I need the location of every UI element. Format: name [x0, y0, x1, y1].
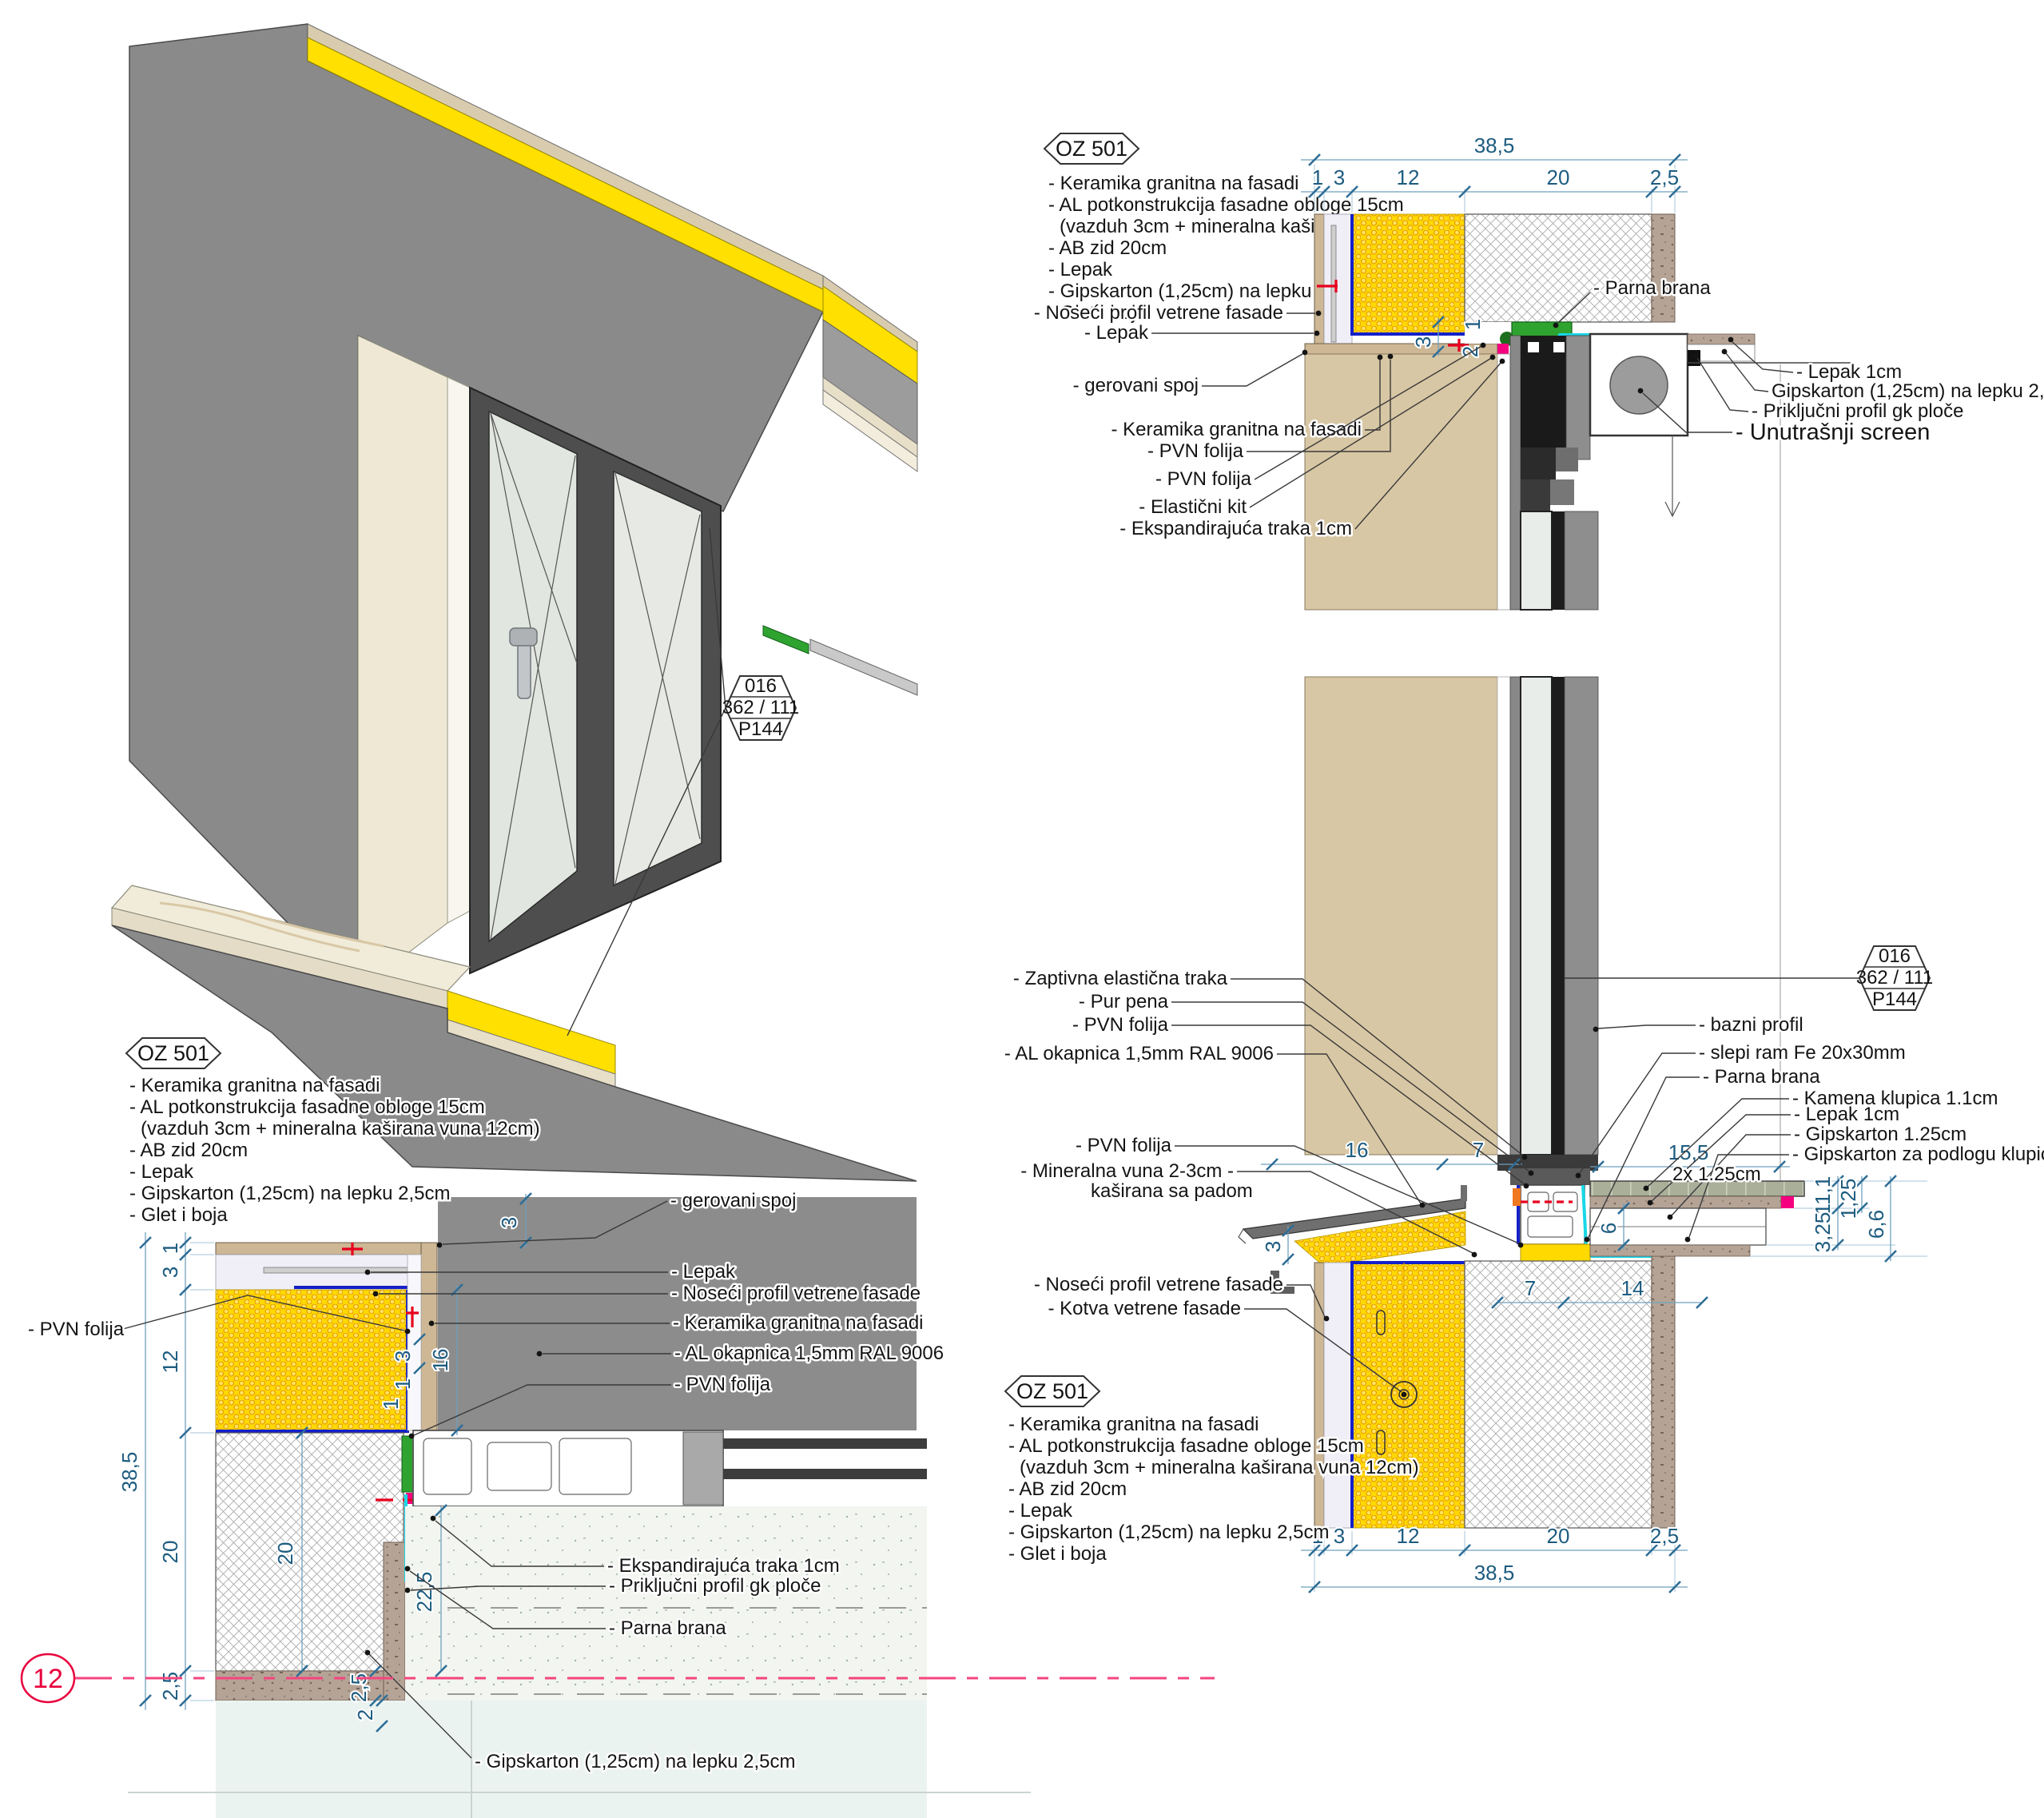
- glass-line: [723, 1469, 927, 1479]
- insulation-layer: [216, 1290, 408, 1433]
- stamp-sill: 016 362 / 111 P144: [1565, 945, 1933, 1010]
- sash-profile: [1565, 677, 1598, 1155]
- label-pvn: - PVN folija: [1076, 1135, 1172, 1156]
- dim-seg: 3: [158, 1267, 182, 1278]
- legend-item: - Keramika granitna na fasadi: [129, 1075, 380, 1096]
- subsill-profile: [1521, 1185, 1585, 1244]
- dim: 22,5: [412, 1572, 436, 1613]
- screen-roller: [1610, 356, 1668, 414]
- dim-total: 38,5: [1474, 1561, 1515, 1585]
- label-gipspod: - Gipskarton za podlogu klupice: [1792, 1144, 2044, 1165]
- legend-item: - Lepak: [1048, 259, 1113, 280]
- gap-return: [408, 1255, 421, 1430]
- label-mineralna2: kaširana sa padom: [1091, 1180, 1253, 1202]
- air-gap-layer: [1324, 214, 1352, 344]
- dim-total: 38,5: [117, 1452, 141, 1493]
- endcap-profile: [810, 639, 917, 695]
- label-prikljucni: - Priključni profil gk ploče: [609, 1575, 821, 1597]
- dim: 6: [1597, 1223, 1620, 1234]
- ab-zid-layer: [216, 1433, 404, 1671]
- label-noseci: - Noseći profil vetrene fasade: [671, 1283, 921, 1304]
- stamp-line3: P144: [1872, 989, 1917, 1010]
- dim-seg: 3: [1334, 1524, 1345, 1548]
- label-noseci: - Noseći profil vetrene fasade: [1034, 302, 1283, 324]
- label-keramika: - Keramika granitna na fasadi: [673, 1312, 924, 1334]
- reveal-face: [1305, 677, 1497, 1155]
- legend-item: - Gipskarton (1,25cm) na lepku 2,5cm: [1008, 1522, 1330, 1543]
- glass: [1521, 677, 1552, 1155]
- label-mineralna: - Mineralna vuna 2-3cm -: [1020, 1160, 1234, 1182]
- dim-seg: 1: [1312, 165, 1323, 189]
- sash-step: [1521, 448, 1556, 479]
- screen-arrow: [1665, 436, 1680, 516]
- ceramic-layer: [216, 1243, 435, 1255]
- ceramic-layer: [1314, 214, 1324, 344]
- dim: 3: [497, 1217, 521, 1228]
- interior-face: [405, 1506, 927, 1701]
- dim-small: 1: [1461, 319, 1485, 330]
- label-noseci: - Noseći profil vetrene fasade: [1034, 1274, 1283, 1295]
- dim: 16: [1346, 1138, 1369, 1162]
- joint-tape: [1781, 1196, 1794, 1208]
- label-parna: - Parna brana: [1593, 277, 1711, 299]
- dim-seg: 12: [158, 1351, 182, 1374]
- label-gips: Gipskarton (1,25cm) na lepku 2,5cm: [1772, 380, 2044, 402]
- drawing-canvas: 016 362 / 111 P144 OZ 501 - Keramika gra…: [0, 0, 2044, 1818]
- label-prikljucni: - Priključni profil gk ploče: [1752, 400, 1963, 422]
- legend-item: - Gipskarton (1,25cm) na lepku 2,5cm: [129, 1183, 451, 1204]
- label-pvn: - PVN folija: [1072, 1014, 1169, 1036]
- gips-return: [384, 1542, 405, 1701]
- label-okapnica: - AL okapnica 1,5mm RAL 9006: [1004, 1043, 1274, 1064]
- legend-code: OZ 501: [1056, 137, 1127, 161]
- label-lepak: - Lepak: [671, 1261, 736, 1283]
- dim: 11,1: [1811, 1176, 1835, 1215]
- ab-zid-layer: [1465, 214, 1652, 322]
- lepak-3d: [763, 626, 809, 654]
- frame-gap: [1497, 677, 1510, 1155]
- air-gap-layer: [1324, 1263, 1352, 1528]
- label-lepak: - Lepak: [1084, 322, 1149, 344]
- ab-zid-layer: [1465, 1261, 1652, 1528]
- legend-code: OZ 501: [137, 1041, 209, 1065]
- dim: 3: [1261, 1241, 1285, 1252]
- legend-item: - AB zid 20cm: [1048, 237, 1167, 259]
- frame-inner: [1566, 336, 1590, 459]
- label-parna: - Parna brana: [609, 1617, 726, 1639]
- dim: 1: [391, 1378, 415, 1390]
- mineral-wool: [1521, 1244, 1590, 1263]
- legend-item: - AL potkonstrukcija fasadne obloge 15cm: [1048, 194, 1404, 216]
- legend-item: (vazduh 3cm + mineralna kaširana vuna 12…: [1020, 1457, 1419, 1478]
- stamp-line3: P144: [738, 718, 783, 740]
- ceiling-lepak: [1688, 334, 1755, 344]
- frame-outer: [1510, 336, 1521, 610]
- label-kotva: - Kotva vetrene fasade: [1048, 1298, 1241, 1319]
- label-lepak1cm: - Lepak 1cm: [1794, 1104, 1899, 1125]
- label-ekspand: - Ekspandirajuća traka 1cm: [607, 1555, 840, 1577]
- legend-item: - Glet i boja: [1008, 1543, 1107, 1565]
- dim: 1: [379, 1398, 403, 1410]
- glass-line: [723, 1438, 927, 1449]
- legend-item: - Keramika granitna na fasadi: [1008, 1414, 1259, 1435]
- legend-code: OZ 501: [1016, 1379, 1088, 1403]
- label-gips: - Gipskarton (1,25cm) na lepku 2,5cm: [475, 1751, 796, 1772]
- dim-seg: 20: [1547, 1524, 1570, 1548]
- ceramic-layer: [1314, 1263, 1324, 1528]
- glass: [1521, 511, 1552, 610]
- label-keramika: - Keramika granitna na fasadi: [1111, 419, 1362, 440]
- label-gerovani: - gerovani spoj: [1073, 375, 1199, 396]
- stamp-line2: 362 / 111: [722, 697, 800, 718]
- stamp-line2: 362 / 111: [1856, 967, 1934, 989]
- dim: 20: [273, 1542, 297, 1565]
- legend-item: (vazduh 3cm + mineralna kaširana vuna 12…: [141, 1118, 540, 1140]
- label-bazni: - bazni profil: [1699, 1014, 1803, 1036]
- reveal-board: [447, 377, 470, 923]
- label-screen: - Unutrašnji screen: [1736, 420, 1930, 445]
- window-handle-base: [510, 628, 537, 646]
- sill-detail: 016 362 / 111 P144 16 7 15,5 6 7 14 11,1…: [1004, 677, 2044, 1593]
- dim-seg: 2,5: [1650, 1524, 1679, 1548]
- axon-view: 016 362 / 111 P144: [112, 24, 917, 1181]
- legend-item: - Lepak: [129, 1161, 194, 1183]
- glass-edge: [1552, 511, 1565, 610]
- reveal-face: [1305, 354, 1497, 610]
- frame-outer: [1510, 677, 1521, 1155]
- dim-small: 3: [1411, 336, 1435, 348]
- label-pvn: - PVN folija: [1155, 468, 1252, 490]
- dim: 1,25: [1836, 1179, 1860, 1219]
- lepak-strip: [402, 1436, 413, 1492]
- frame-profiles: [413, 1430, 723, 1506]
- sash-step: [1556, 448, 1578, 471]
- label-ekspand: - Ekspandirajuća traka 1cm: [1119, 518, 1352, 539]
- glass-edge: [1552, 677, 1565, 1155]
- label-zaptivna: - Zaptivna elastična traka: [1013, 968, 1228, 989]
- legend-item: - AB zid 20cm: [1008, 1478, 1127, 1500]
- dim: 2: [353, 1709, 377, 1721]
- dim-seg: 12: [1397, 1524, 1420, 1548]
- label-gipspod2: 2x 1.25cm: [1672, 1164, 1761, 1185]
- legend-item: - Lepak: [1008, 1500, 1073, 1522]
- window-glass-right: [614, 471, 702, 885]
- label-gips125: - Gipskarton 1.25cm: [1794, 1124, 1966, 1145]
- thermal-break: [1553, 342, 1565, 352]
- dim: 14: [1621, 1276, 1644, 1300]
- gips-layer: [1652, 1256, 1675, 1528]
- dim-seg: 20: [1547, 165, 1570, 189]
- gk-profile: [1688, 350, 1700, 366]
- label-okapnica: - AL okapnica 1,5mm RAL 9006: [674, 1343, 944, 1364]
- dim: 3: [391, 1351, 415, 1362]
- frame-gap: [1497, 354, 1510, 610]
- dim-seg: 20: [158, 1541, 182, 1564]
- legend-item: - AL potkonstrukcija fasadne obloge 15cm: [129, 1096, 485, 1118]
- sash-step: [1521, 479, 1550, 511]
- legend-item: - Keramika granitna na fasadi: [1048, 173, 1299, 194]
- sash-profile: [1565, 511, 1598, 610]
- seal-block: [1513, 1188, 1521, 1206]
- sash-step: [1550, 479, 1574, 505]
- label-pvn: - PVN folija: [674, 1374, 771, 1395]
- legend-item: - AL potkonstrukcija fasadne obloge 15cm: [1008, 1435, 1364, 1457]
- legend-item: - Glet i boja: [129, 1204, 228, 1226]
- dim-seg: 2,5: [158, 1672, 182, 1701]
- stamp-line1: 016: [1879, 945, 1911, 967]
- label-lepak1cm: - Lepak 1cm: [1796, 361, 1902, 383]
- insulation-layer: [1352, 214, 1465, 334]
- dim-seg: 3: [1334, 165, 1345, 189]
- dim-seg: 2,5: [1650, 165, 1679, 189]
- window-glass-left: [489, 412, 577, 941]
- okapnica-upturn: [1461, 1185, 1467, 1201]
- dim-seg: 12: [1397, 165, 1420, 189]
- legend-item: - AB zid 20cm: [129, 1140, 248, 1161]
- dim: 16: [428, 1349, 452, 1372]
- dim: 15,5: [1668, 1140, 1709, 1164]
- stamp-line1: 016: [745, 675, 777, 697]
- label-parna: - Parna brana: [1703, 1066, 1820, 1088]
- dim-total: 38,5: [1474, 133, 1515, 157]
- label-pvn: - PVN folija: [1147, 440, 1244, 462]
- window-handle: [518, 639, 531, 698]
- label-pvn: - PVN folija: [28, 1319, 125, 1340]
- reveal-panel: [358, 336, 447, 991]
- label-slepi: - slepi ram Fe 20x30mm: [1699, 1042, 1906, 1064]
- dim: 7: [1525, 1276, 1536, 1300]
- dim: 6,6: [1864, 1210, 1888, 1239]
- label-elasticni: - Elastični kit: [1139, 496, 1247, 518]
- architectural-detail-sheet: 016 362 / 111 P144 OZ 501 - Keramika gra…: [0, 0, 2044, 1818]
- thermal-break: [1528, 342, 1539, 352]
- axis-number: 12: [33, 1664, 63, 1694]
- lepak-band: [1590, 1196, 1781, 1208]
- label-pur: - Pur pena: [1079, 991, 1169, 1012]
- frame-gray-block: [683, 1432, 723, 1505]
- dim: 3,25: [1811, 1212, 1835, 1253]
- dim-seg: 1: [158, 1243, 182, 1254]
- gips-layer: [1652, 214, 1675, 322]
- label-gerovani: - gerovani spoj: [670, 1190, 796, 1211]
- gips-band2: [1590, 1245, 1750, 1256]
